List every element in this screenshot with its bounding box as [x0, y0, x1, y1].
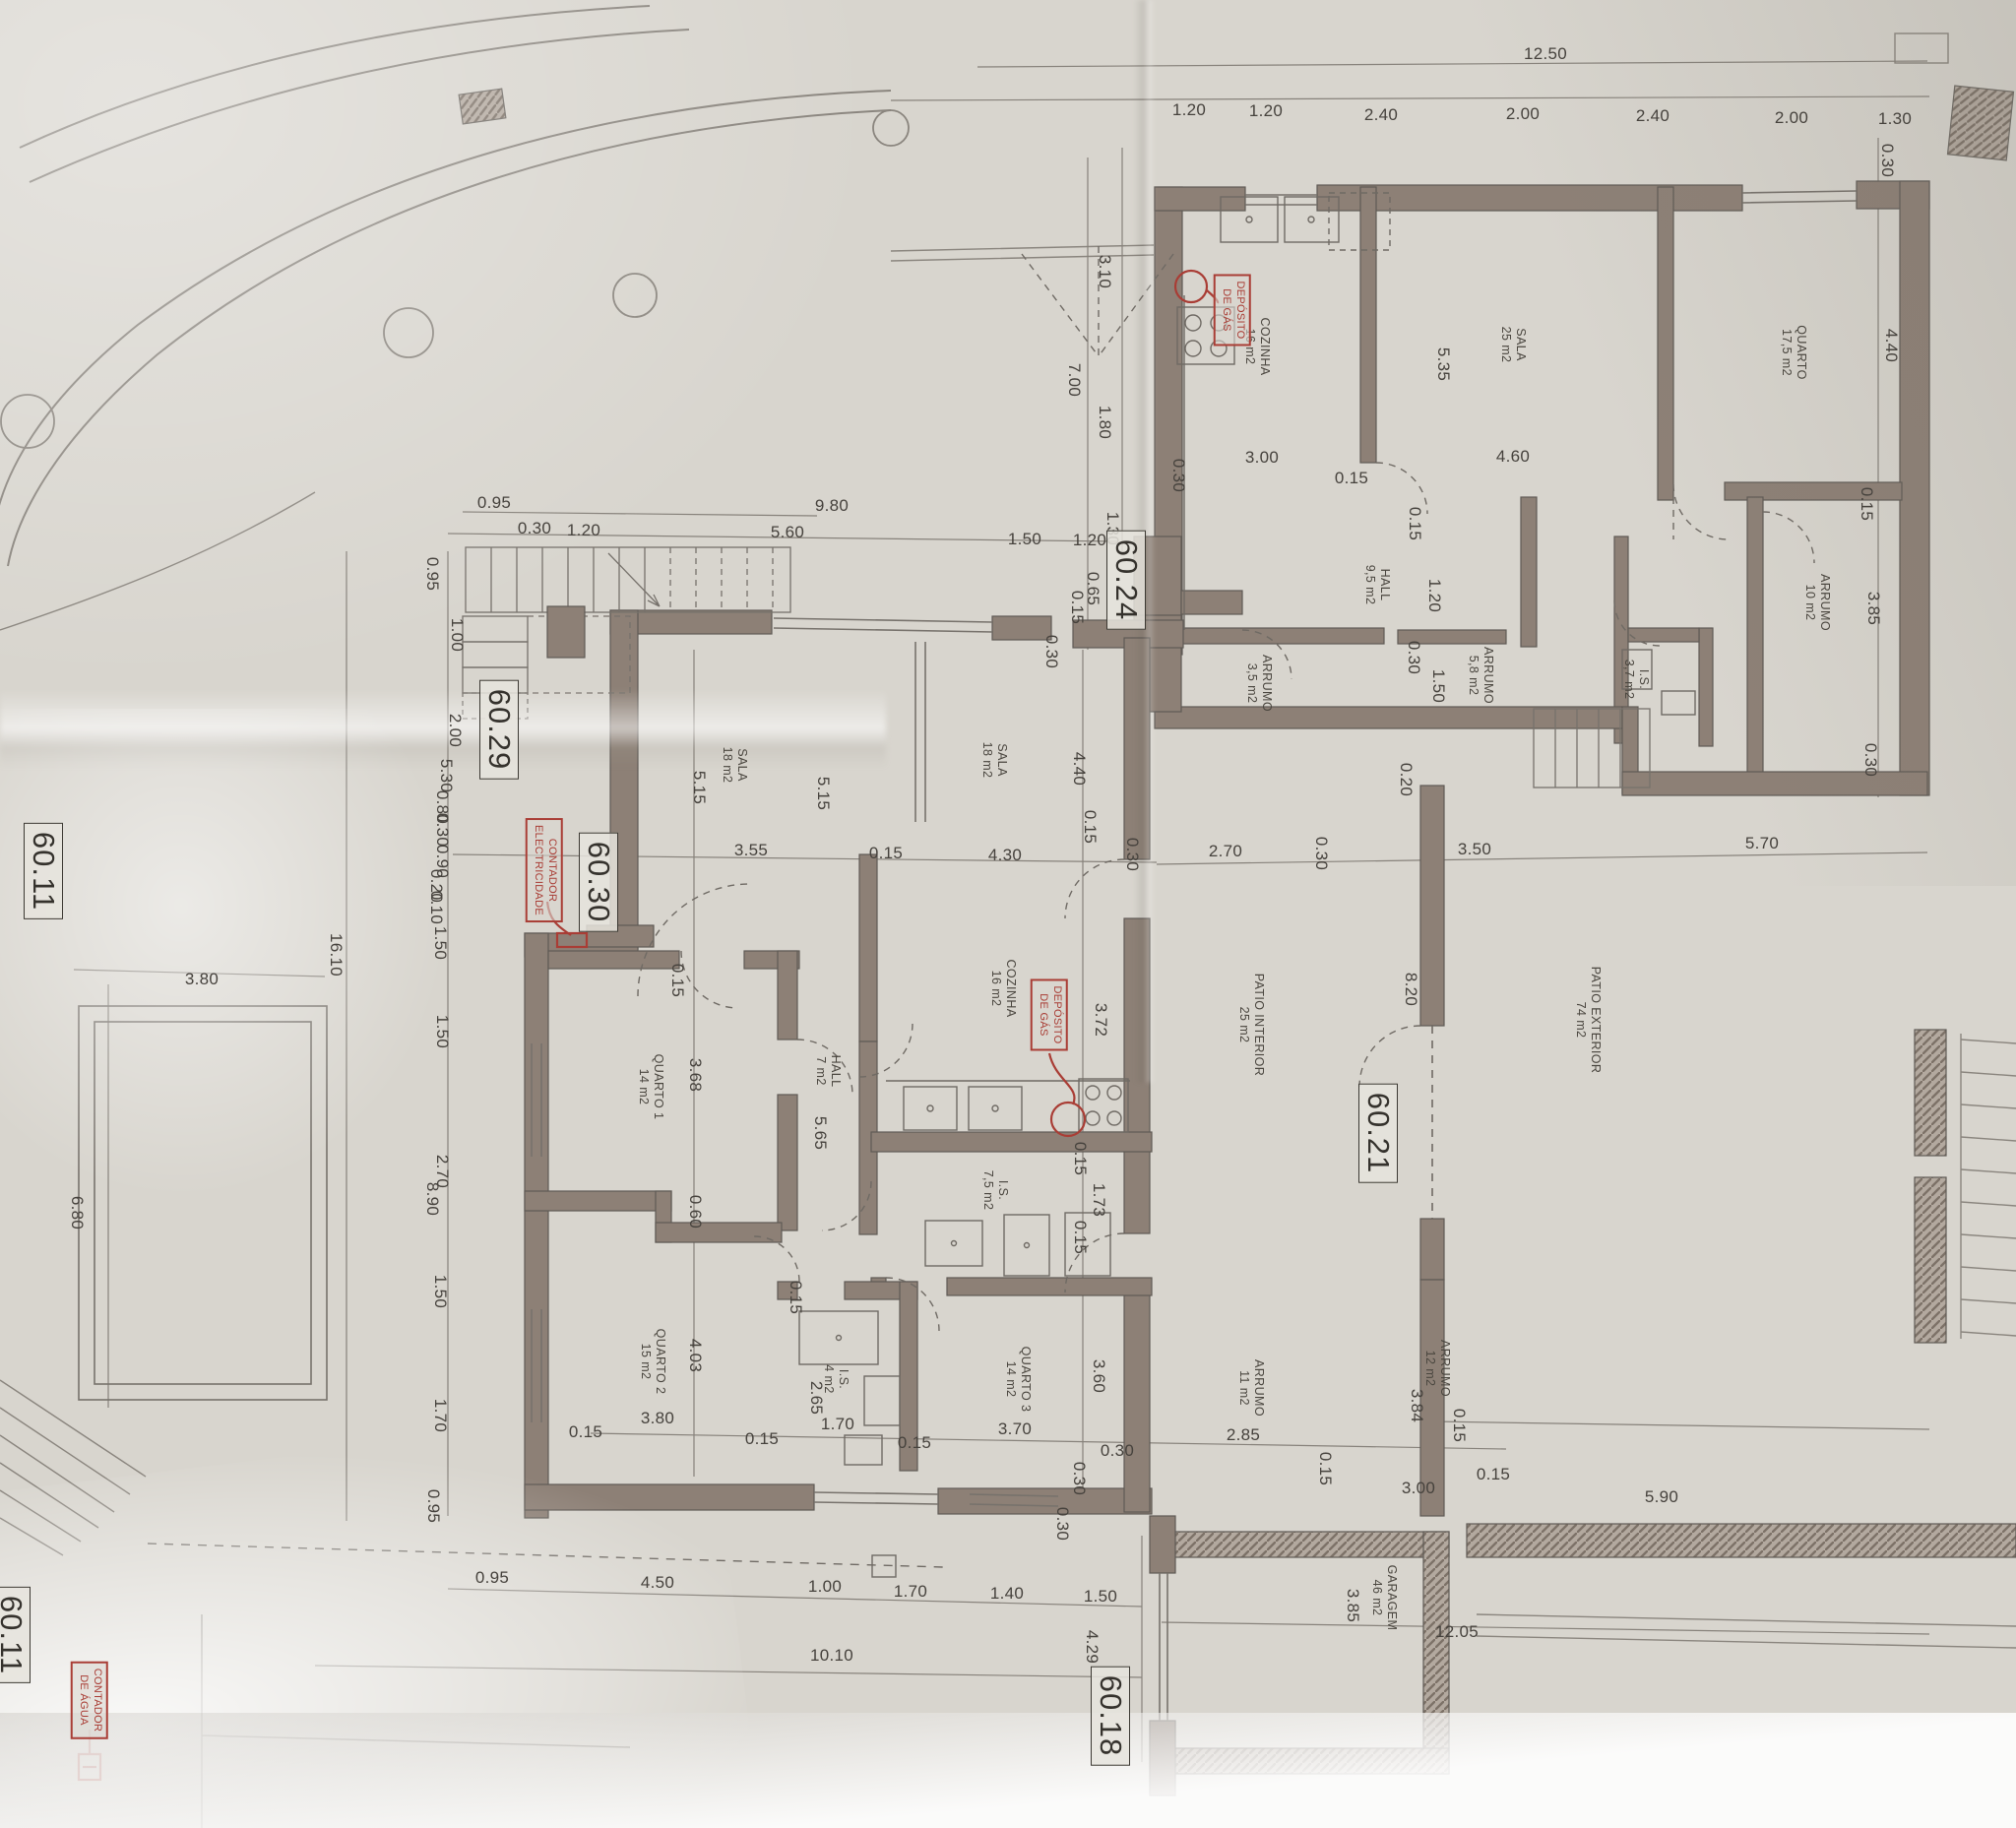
dimension-label: 1.70: [894, 1582, 927, 1602]
dimension-label: 0.95: [477, 493, 511, 513]
dimension-label: 2.40: [1636, 106, 1669, 126]
dimension-label: 1.00: [808, 1577, 842, 1597]
elevation-marker: 60.11: [0, 1587, 31, 1683]
dimension-label: 16.10: [326, 933, 346, 977]
elevation-marker: 60.24: [1106, 531, 1146, 630]
dimension-label: 0.15: [1080, 810, 1100, 844]
room-label: COZINHA 16 m2: [988, 959, 1018, 1017]
elevation-marker: 60.30: [579, 833, 618, 932]
room-label: ARRUMO 11 m2: [1236, 1359, 1266, 1417]
dimension-label: 3.68: [685, 1058, 705, 1092]
dimension-label: 0.95: [422, 557, 442, 591]
dimension-label: 0.30: [1041, 635, 1061, 668]
dimension-label: 2.85: [1227, 1425, 1260, 1445]
patio-door-arc: [1359, 1026, 1420, 1087]
dimension-label: 5.60: [771, 523, 804, 542]
dimension-label: 0.30: [432, 813, 452, 847]
dimension-label: 1.50: [1008, 530, 1041, 549]
garage-door: [1160, 1573, 1167, 1721]
site-circles: [1, 110, 909, 448]
dimension-label: 0.15: [745, 1429, 779, 1449]
dimension-label: 2.00: [1506, 104, 1540, 124]
room-label: I.S. 7,5 m2: [980, 1170, 1010, 1211]
room-label: GARAGEM 46 m2: [1369, 1565, 1399, 1631]
dimension-label: 0.20: [1396, 763, 1416, 796]
dimension-label: 3.10: [1095, 255, 1114, 288]
dimension-label: 2.00: [445, 714, 465, 747]
dimension-label: 1.70: [821, 1415, 854, 1434]
dimension-label: 2.00: [1775, 108, 1808, 128]
lower-kitchen-fixtures: [886, 1079, 1130, 1132]
dimension-label: 0.30: [1860, 743, 1880, 777]
dimension-label: 5.65: [810, 1116, 830, 1150]
dimension-label: 0.15: [569, 1422, 602, 1442]
room-label: ARRUMO 12 m2: [1422, 1340, 1452, 1397]
stair-pier: [547, 606, 585, 658]
dimension-label: 1.00: [447, 618, 467, 652]
dimension-label: 0.15: [1070, 1221, 1090, 1254]
elevation-marker: 60.29: [479, 680, 519, 780]
dimension-label: 0.15: [1405, 507, 1424, 540]
dimension-label: 4.30: [988, 846, 1022, 865]
dimension-label: 7.00: [1064, 363, 1084, 397]
driveway-lines: [148, 1544, 943, 1577]
dimension-label: 12.50: [1524, 44, 1567, 64]
dimension-label: 0.30: [1877, 144, 1897, 177]
dimension-label: 10.10: [810, 1646, 853, 1666]
site-hatched-block: [459, 89, 506, 124]
dimension-label: 2.70: [1209, 842, 1242, 861]
dimension-label: 1.20: [1073, 531, 1106, 550]
red-annotation-label: CONTADOR ELECTRICIDADE: [526, 818, 563, 922]
lower-house-walls: [525, 610, 1183, 1518]
dimension-label: 3.00: [1245, 448, 1279, 468]
dimension-label: 3.55: [734, 841, 768, 860]
dimension-label: 0.15: [1477, 1465, 1510, 1484]
dimension-label: 5.15: [689, 771, 709, 804]
lower-house-doors: [638, 859, 1124, 1331]
dimension-label: 4.50: [641, 1573, 674, 1593]
upper-kitchen-fixtures: [1177, 193, 1390, 630]
dimension-label: 0.95: [475, 1568, 509, 1588]
dimension-label: 1.20: [567, 521, 600, 540]
garage-walls: [1150, 1516, 1449, 1796]
dimension-label: 3.80: [185, 970, 219, 989]
dimension-label: 4.03: [685, 1339, 705, 1372]
dimension-label: 4.29: [1082, 1630, 1102, 1664]
dimension-label: 1.30: [1878, 109, 1912, 129]
dimension-label: 0.15: [1067, 591, 1087, 624]
room-label: I.S. 4 m2: [821, 1364, 850, 1393]
dimension-label: 0.15: [1315, 1452, 1335, 1485]
dimension-label: 1.80: [1095, 406, 1114, 439]
dimension-label: 0.30: [1052, 1507, 1072, 1541]
dimension-label: 0.30: [518, 519, 551, 538]
room-label: QUARTO 17,5 m2: [1779, 325, 1808, 379]
elevation-marker: 60.11: [24, 823, 63, 919]
dimension-label: 0.15: [786, 1281, 805, 1314]
dimension-label: 0.15: [1070, 1142, 1090, 1175]
dimension-label: 3.72: [1091, 1003, 1110, 1037]
dimension-label: 1.50: [430, 1275, 450, 1308]
dimension-label: 0.15: [1449, 1409, 1469, 1442]
dimension-label: 1.20: [1172, 100, 1206, 120]
dimension-label: 1.40: [990, 1584, 1024, 1604]
red-annotation-label: DEPÓSITO DE GÁS: [1031, 978, 1068, 1050]
dimension-label: 0.30: [1069, 1462, 1089, 1495]
dimension-label: 0.10: [426, 891, 446, 924]
elevation-marker: 60.21: [1358, 1084, 1398, 1183]
dimension-label: 0.30: [1168, 459, 1188, 492]
dimension-label: 0.15: [898, 1433, 931, 1453]
dimension-label: 5.90: [1645, 1487, 1678, 1507]
dimension-label: 9.80: [815, 496, 849, 516]
room-label: SALA 18 m2: [979, 742, 1009, 779]
room-label: PATIO EXTERIOR 74 m2: [1573, 967, 1603, 1074]
dimension-label: 8.20: [1401, 973, 1420, 1006]
dimension-label: 0.15: [869, 844, 903, 863]
dimension-label: 1.50: [1084, 1587, 1117, 1607]
red-annotation-label: DEPÓSITO DE GÁS: [1214, 274, 1251, 346]
dimension-label: 1.20: [1424, 579, 1444, 612]
dimension-label: 3.80: [641, 1409, 674, 1428]
dimension-label: 4.40: [1881, 329, 1901, 362]
dimension-label: 5.35: [1433, 347, 1453, 381]
floor-plan-sheet: 12.501.201.202.402.002.402.001.300.304.4…: [0, 0, 2016, 1828]
dimension-label: 0.30: [1122, 838, 1142, 871]
dimension-label: 1.20: [1249, 101, 1283, 121]
dimension-label: 1.73: [1089, 1183, 1108, 1217]
room-label: ARRUMO 3,5 m2: [1244, 655, 1274, 712]
dimension-label: 5.30: [436, 759, 456, 792]
elevation-marker: 60.18: [1091, 1667, 1130, 1766]
room-label: ARRUMO 10 m2: [1802, 574, 1832, 631]
dimension-label: 0.15: [1335, 469, 1368, 488]
pool: [79, 1006, 327, 1400]
dimension-label: 3.85: [1343, 1589, 1362, 1622]
dimension-label: 1.70: [430, 1399, 450, 1432]
dimension-label: 0.30: [1404, 641, 1423, 674]
dimension-label: 5.15: [813, 777, 833, 810]
dimension-label: 0.60: [685, 1195, 705, 1229]
room-label: HALL 9,5 m2: [1362, 565, 1392, 605]
dimension-label: 1.50: [432, 1015, 452, 1048]
dimension-label: 1.50: [1428, 669, 1448, 703]
dimension-label: 3.50: [1458, 840, 1491, 859]
dimension-label: 3.70: [998, 1419, 1032, 1439]
gas-deposit-circle-lower: [1051, 1103, 1085, 1136]
dimension-label: 3.00: [1402, 1479, 1435, 1498]
room-label: ARRUMO 5,8 m2: [1466, 647, 1495, 704]
dimension-label: 4.40: [1069, 752, 1089, 786]
boundary-hatched-walls: [1467, 1030, 2016, 1557]
room-label: QUARTO 2 15 m2: [638, 1329, 667, 1395]
dimension-label: 5.70: [1745, 834, 1779, 853]
red-annotation-label: CONTADOR DE ÁGUA: [71, 1662, 108, 1739]
dimension-label: 0.95: [423, 1489, 443, 1523]
room-label: SALA 18 m2: [720, 747, 749, 784]
room-label: I.S. 3,7 m2: [1621, 660, 1651, 700]
dimension-label: 2.40: [1364, 105, 1398, 125]
dimension-label: 0.15: [1857, 487, 1876, 521]
room-label: PATIO INTERIOR 25 m2: [1236, 974, 1266, 1076]
room-label: QUARTO 1 14 m2: [636, 1054, 665, 1120]
dimension-label: 8.90: [422, 1182, 442, 1216]
dimension-label: 4.60: [1496, 447, 1530, 467]
dimension-label: 6.80: [67, 1196, 87, 1229]
room-label: SALA 25 m2: [1498, 327, 1528, 363]
dimension-label: 0.30: [1101, 1441, 1134, 1461]
room-label: QUARTO 3 14 m2: [1003, 1347, 1033, 1413]
dimension-label: 12.05: [1435, 1622, 1479, 1642]
floor-plan-drawing: [0, 0, 2016, 1828]
dimension-label: 1.50: [430, 926, 450, 960]
room-label: HALL 7 m2: [813, 1055, 843, 1088]
dimension-label: 3.85: [1863, 592, 1883, 625]
dimension-label: 0.15: [667, 964, 687, 997]
dimension-label: 3.60: [1089, 1359, 1108, 1393]
dimension-label: 0.30: [1311, 837, 1331, 870]
